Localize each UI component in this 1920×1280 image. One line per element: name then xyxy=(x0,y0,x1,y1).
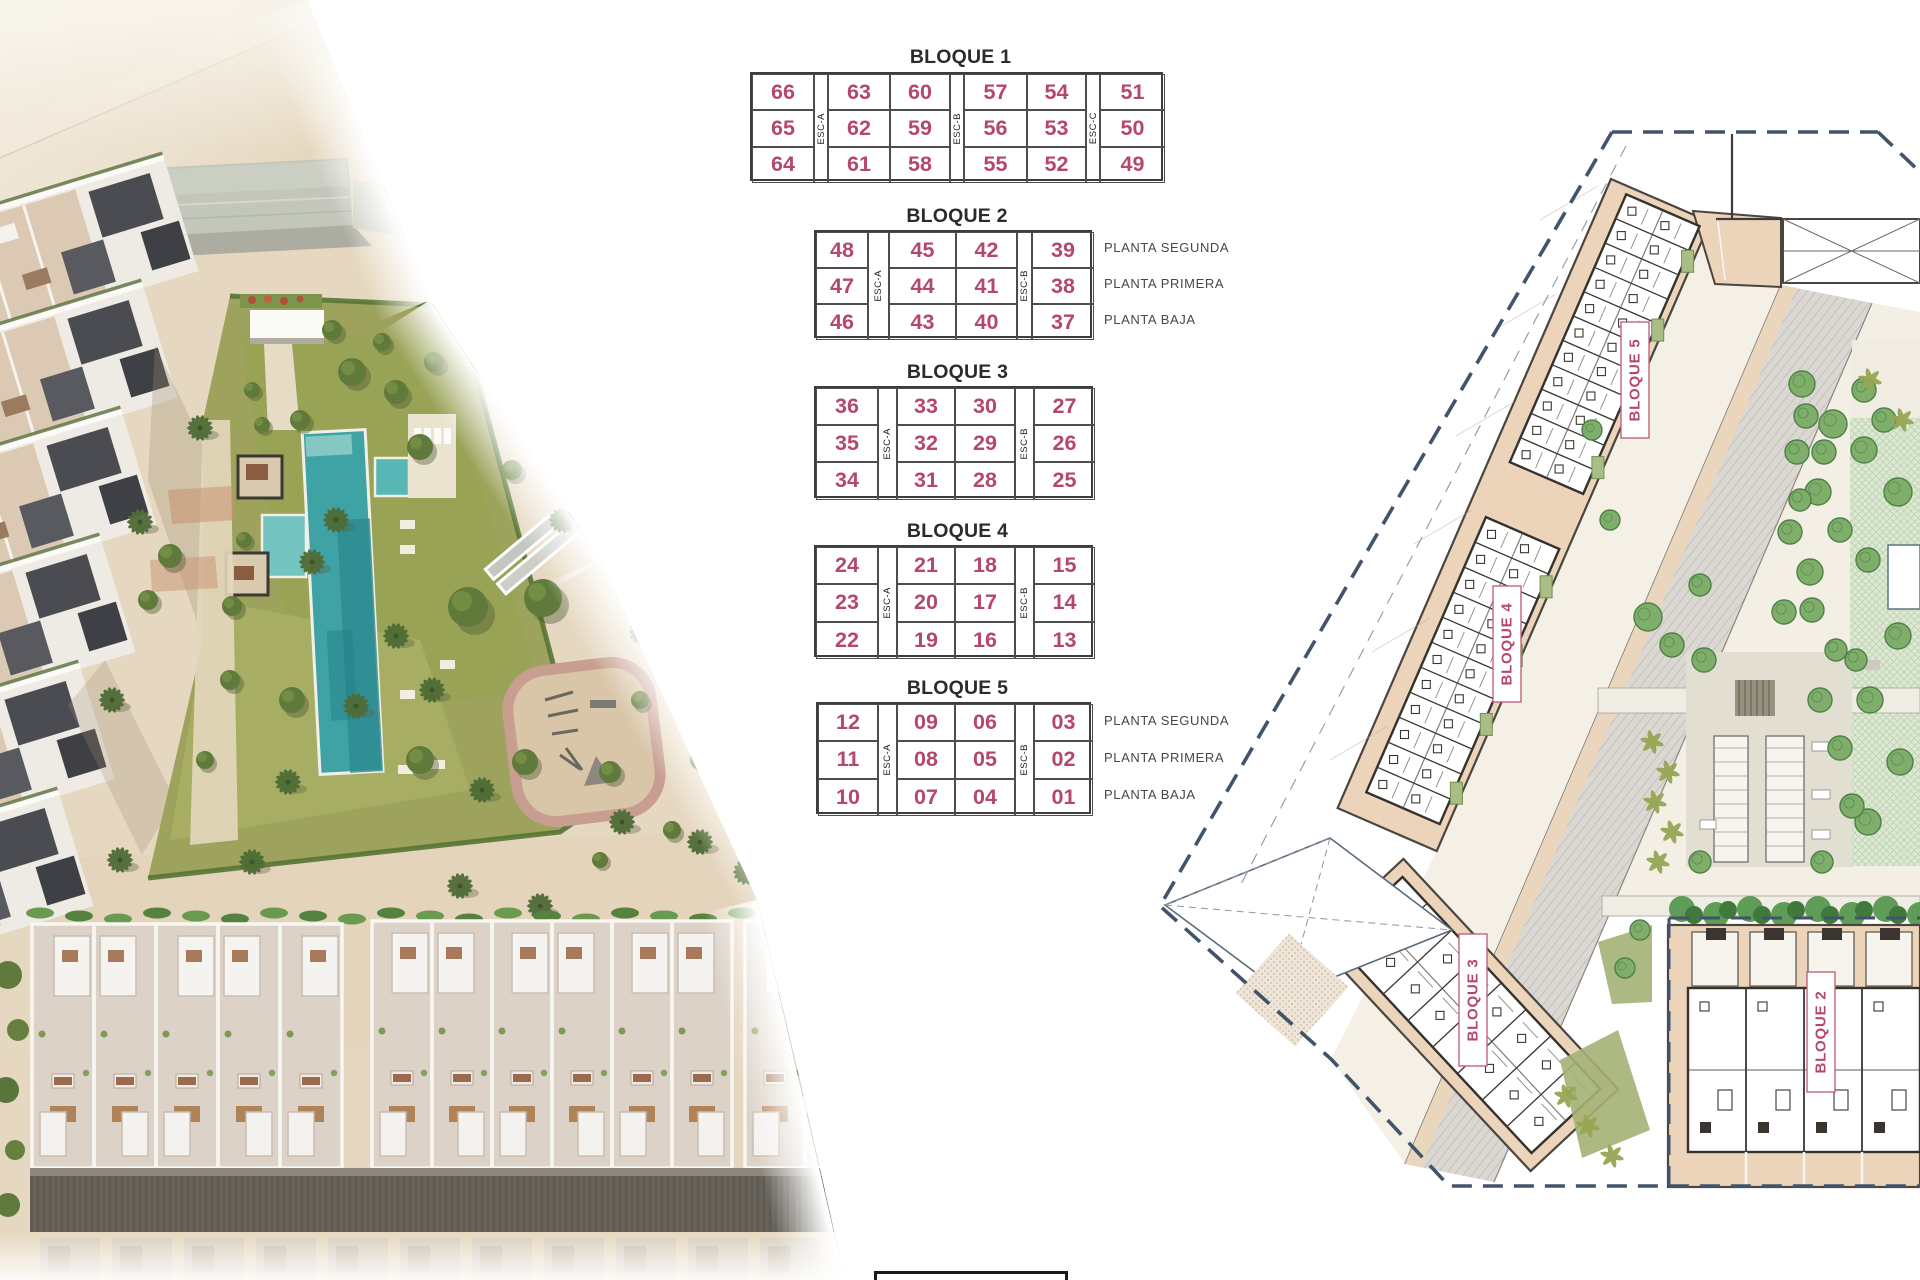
svg-text:BLOQUE 3: BLOQUE 3 xyxy=(1465,958,1482,1041)
svg-text:BLOQUE 4: BLOQUE 4 xyxy=(1499,602,1516,685)
svg-text:BLOQUE 2: BLOQUE 2 xyxy=(1813,990,1830,1073)
svg-text:BLOQUE 5: BLOQUE 5 xyxy=(1627,338,1644,421)
